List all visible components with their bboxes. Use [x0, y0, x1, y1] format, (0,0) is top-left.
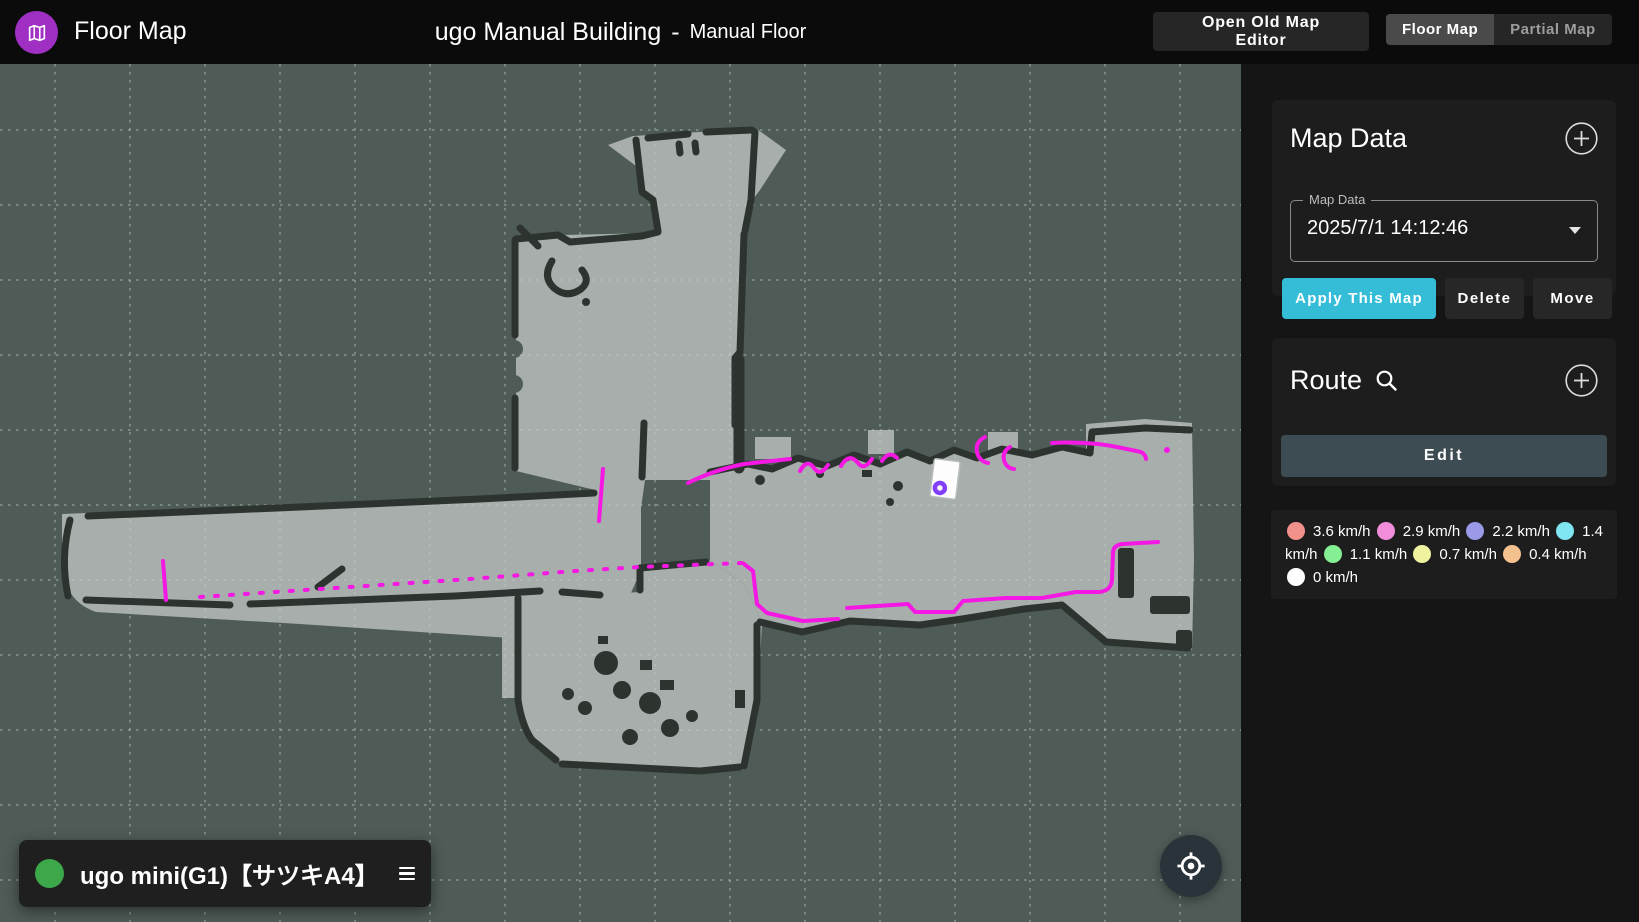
route-panel: Route Edit [1272, 338, 1616, 486]
speed-legend: 3.6 km/h 2.9 km/h 2.2 km/h 1.4 km/h 1.1 … [1271, 510, 1617, 599]
speed-dot [1466, 522, 1484, 540]
speed-dot [1413, 545, 1431, 563]
speed-dot [1556, 522, 1574, 540]
speed-dot [1503, 545, 1521, 563]
tab-floor-map[interactable]: Floor Map [1386, 14, 1494, 45]
map-data-panel: Map Data Map Data 2025/7/1 14:12:46 Appl… [1272, 100, 1616, 296]
add-map-data-button[interactable] [1565, 122, 1598, 155]
legend-item: 0.7 km/h [1411, 546, 1497, 563]
map-data-select[interactable]: Map Data 2025/7/1 14:12:46 [1290, 200, 1598, 262]
map-view-toggle: Floor Map Partial Map [1386, 14, 1612, 45]
legend-item: 0 km/h [1285, 569, 1358, 586]
robot-marker[interactable] [930, 459, 960, 500]
move-map-button[interactable]: Move [1533, 278, 1612, 319]
search-icon [1374, 368, 1400, 394]
crosshair-gps-icon [1175, 850, 1207, 882]
robot-online-status-dot [35, 859, 64, 888]
caret-down-icon [1569, 227, 1581, 234]
locate-robot-button[interactable] [1160, 835, 1222, 897]
hamburger-menu-icon[interactable] [399, 867, 415, 881]
map-viewport[interactable]: ugo mini(G1)【サツキA4】 [0, 64, 1241, 922]
open-old-map-editor-button[interactable]: Open Old Map Editor [1153, 12, 1369, 51]
floor-map-app: Floor Map ugo Manual Building - Manual F… [0, 0, 1639, 922]
right-sidebar: Map Data Map Data 2025/7/1 14:12:46 Appl… [1241, 64, 1639, 922]
speed-dot [1324, 545, 1342, 563]
floor-title: Manual Floor [690, 21, 807, 44]
title-separator: - [671, 18, 679, 47]
legend-item: 0.4 km/h [1501, 546, 1587, 563]
robot-status-chip[interactable]: ugo mini(G1)【サツキA4】 [19, 840, 431, 907]
legend-item: 2.9 km/h [1375, 523, 1461, 540]
delete-map-button[interactable]: Delete [1445, 278, 1524, 319]
legend-item: 2.2 km/h [1464, 523, 1550, 540]
map-data-title: Map Data [1290, 123, 1407, 154]
plus-circle-icon [1565, 364, 1598, 397]
add-route-button[interactable] [1565, 364, 1598, 397]
top-app-bar: Floor Map ugo Manual Building - Manual F… [0, 0, 1639, 64]
route-search-button[interactable] [1374, 368, 1400, 394]
map-data-select-label: Map Data [1303, 192, 1371, 207]
tab-partial-map[interactable]: Partial Map [1494, 14, 1612, 45]
plus-circle-icon [1565, 122, 1598, 155]
speed-dot [1287, 522, 1305, 540]
map-data-selected-value: 2025/7/1 14:12:46 [1307, 217, 1468, 240]
floor-map-canvas[interactable] [0, 64, 1241, 922]
apply-this-map-button[interactable]: Apply This Map [1282, 278, 1436, 319]
robot-name: ugo mini(G1)【サツキA4】 [80, 856, 379, 891]
route-title: Route [1290, 365, 1362, 396]
speed-dot [1377, 522, 1395, 540]
breadcrumb: ugo Manual Building - Manual Floor [0, 0, 1241, 64]
legend-item: 1.1 km/h [1322, 546, 1408, 563]
building-title: ugo Manual Building [435, 18, 662, 47]
edit-route-button[interactable]: Edit [1281, 435, 1607, 477]
legend-item: 3.6 km/h [1285, 523, 1371, 540]
speed-dot [1287, 568, 1305, 586]
